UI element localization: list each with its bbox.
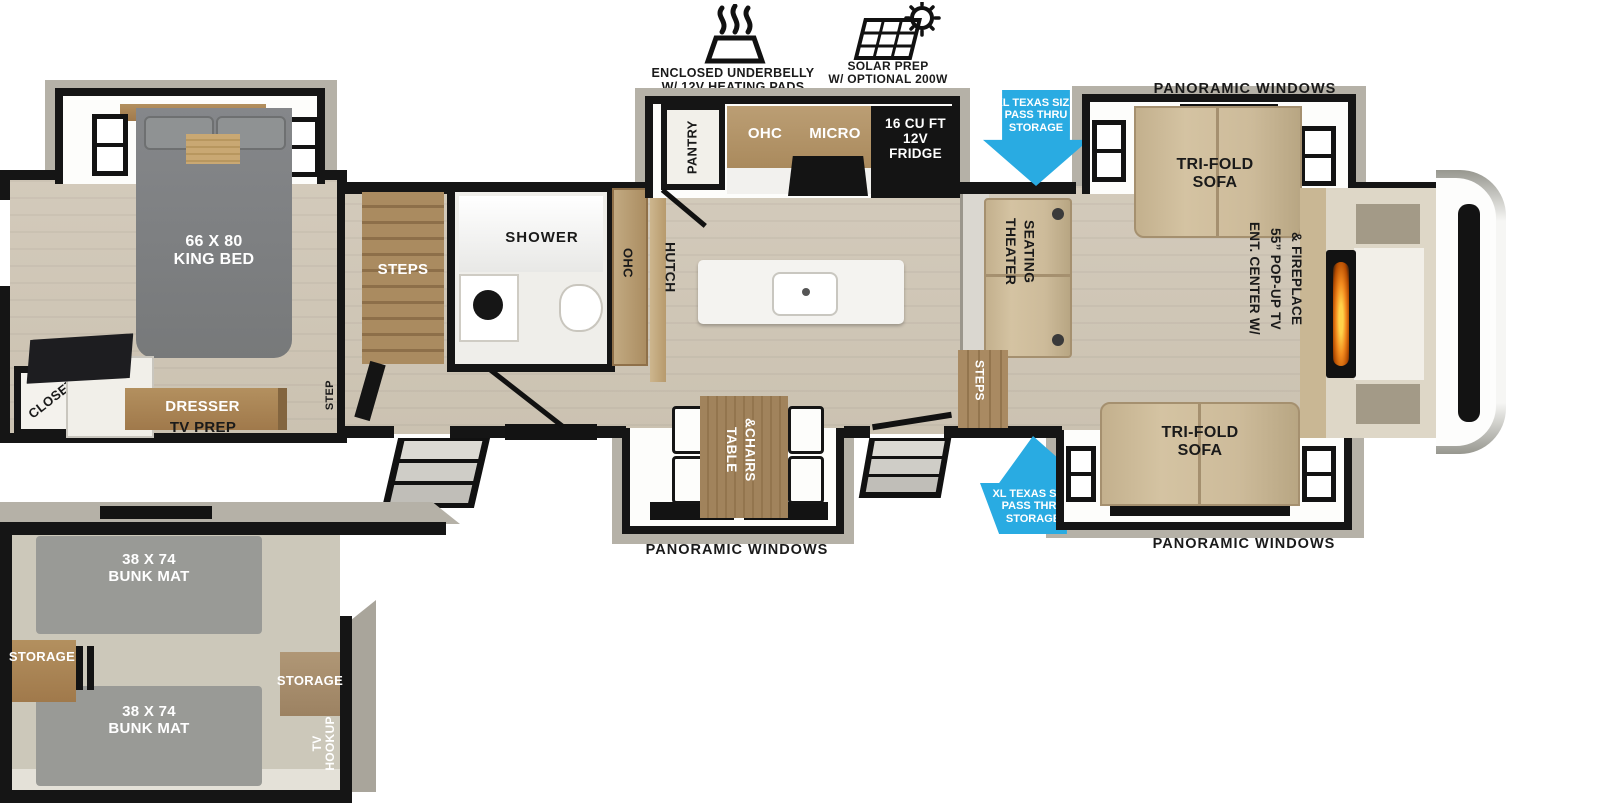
- wall-bottom-3: [844, 426, 870, 438]
- storage-left-label: STORAGE: [4, 650, 80, 665]
- hutch-label: HUTCH: [662, 242, 678, 293]
- tv-hookup-label: TV HOOKUP: [311, 716, 338, 770]
- storage-right-label: STORAGE: [268, 674, 352, 689]
- pantry-label: PANTRY: [686, 120, 701, 174]
- bath-vanity: [459, 274, 519, 342]
- bunk-wall-top: [0, 522, 446, 535]
- bunk-roof-vent: [100, 506, 212, 519]
- panoramic-bottom-left-label: PANORAMIC WINDOWS: [617, 542, 857, 558]
- kitchen-ohc-label: OHC: [735, 126, 795, 143]
- bunk-top-label: 38 X 74 BUNK MAT: [66, 552, 232, 586]
- bunk-roof-band: [0, 502, 460, 524]
- bunk-wall-bottom: [0, 790, 352, 803]
- living-steps-label: STEPS: [972, 360, 985, 401]
- bedroom-left-window: [0, 200, 10, 286]
- wall-top-2: [952, 182, 1076, 194]
- kitchen-island: [698, 260, 904, 324]
- living-bottom-window-right: [1302, 446, 1336, 502]
- wall-bottom-1: [337, 426, 394, 438]
- king-bed-label: 66 X 80 KING BED: [154, 233, 274, 269]
- dinette-chair: [788, 406, 824, 454]
- dresser-label: DRESSER: [130, 399, 275, 416]
- ent-center-label: ENT. CENTER W/ 55” POP-UP TV & FIREPLACE: [1243, 222, 1306, 335]
- range: [788, 156, 868, 196]
- entertainment-center: [1300, 188, 1442, 438]
- galley-window: [505, 424, 597, 440]
- fireplace-flame: [1333, 262, 1349, 366]
- bathroom: SHOWER: [447, 184, 615, 372]
- sofa-top-label: TRI-FOLD SOFA: [1140, 156, 1290, 192]
- living-top-window-right: [1300, 126, 1336, 186]
- front-window: [1458, 204, 1480, 422]
- bunk-ladder: [87, 646, 94, 690]
- bedroom-slide-window-left: [92, 114, 128, 176]
- shower-label: SHOWER: [477, 230, 607, 247]
- bed-tray: [186, 134, 240, 164]
- tv-hookup-box: TV HOOKUP: [292, 700, 356, 786]
- entry-steps-rear: [382, 438, 490, 508]
- theater-seating-label: THEATER SEATING: [1002, 218, 1038, 285]
- bath-sink: [473, 290, 503, 320]
- bedroom-step: STEP: [318, 368, 342, 422]
- fridge-label: 16 CU FT 12V FRIDGE: [871, 116, 960, 161]
- recliner-knob: [1052, 208, 1064, 220]
- bath-ohc-label: OHC: [620, 248, 635, 278]
- king-bed: 66 X 80 KING BED: [136, 108, 292, 358]
- sofa-bottom-label: TRI-FOLD SOFA: [1125, 424, 1275, 460]
- tv-prep-label: TV PREP: [133, 420, 273, 437]
- pantry-label-box: PANTRY: [661, 104, 725, 190]
- step-label: STEP: [324, 380, 336, 410]
- living-bottom-window-left: [1066, 446, 1096, 502]
- island-faucet: [802, 288, 810, 296]
- panoramic-top-label: PANORAMIC WINDOWS: [1125, 81, 1365, 97]
- solar-prep-icon: [838, 2, 942, 60]
- bunk-bottom-label: 38 X 74 BUNK MAT: [66, 704, 232, 738]
- micro-label: MICRO: [795, 126, 875, 143]
- fireplace: [1326, 250, 1356, 378]
- entry-steps-main: [859, 438, 952, 498]
- toilet: [559, 284, 603, 332]
- living-top-window-left: [1092, 120, 1126, 182]
- table-chairs-label: TABLE &CHAIRS: [722, 418, 758, 482]
- panoramic-bottom-right-label: PANORAMIC WINDOWS: [1124, 536, 1364, 552]
- heated-underbelly-icon: [688, 4, 780, 64]
- stairs-label: STEPS: [362, 262, 444, 279]
- dinette-chair: [788, 456, 824, 504]
- floorplan-diagram: ENCLOSED UNDERBELLY W/ 12V HEATING PADS …: [0, 0, 1600, 811]
- recliner-knob: [1052, 334, 1064, 346]
